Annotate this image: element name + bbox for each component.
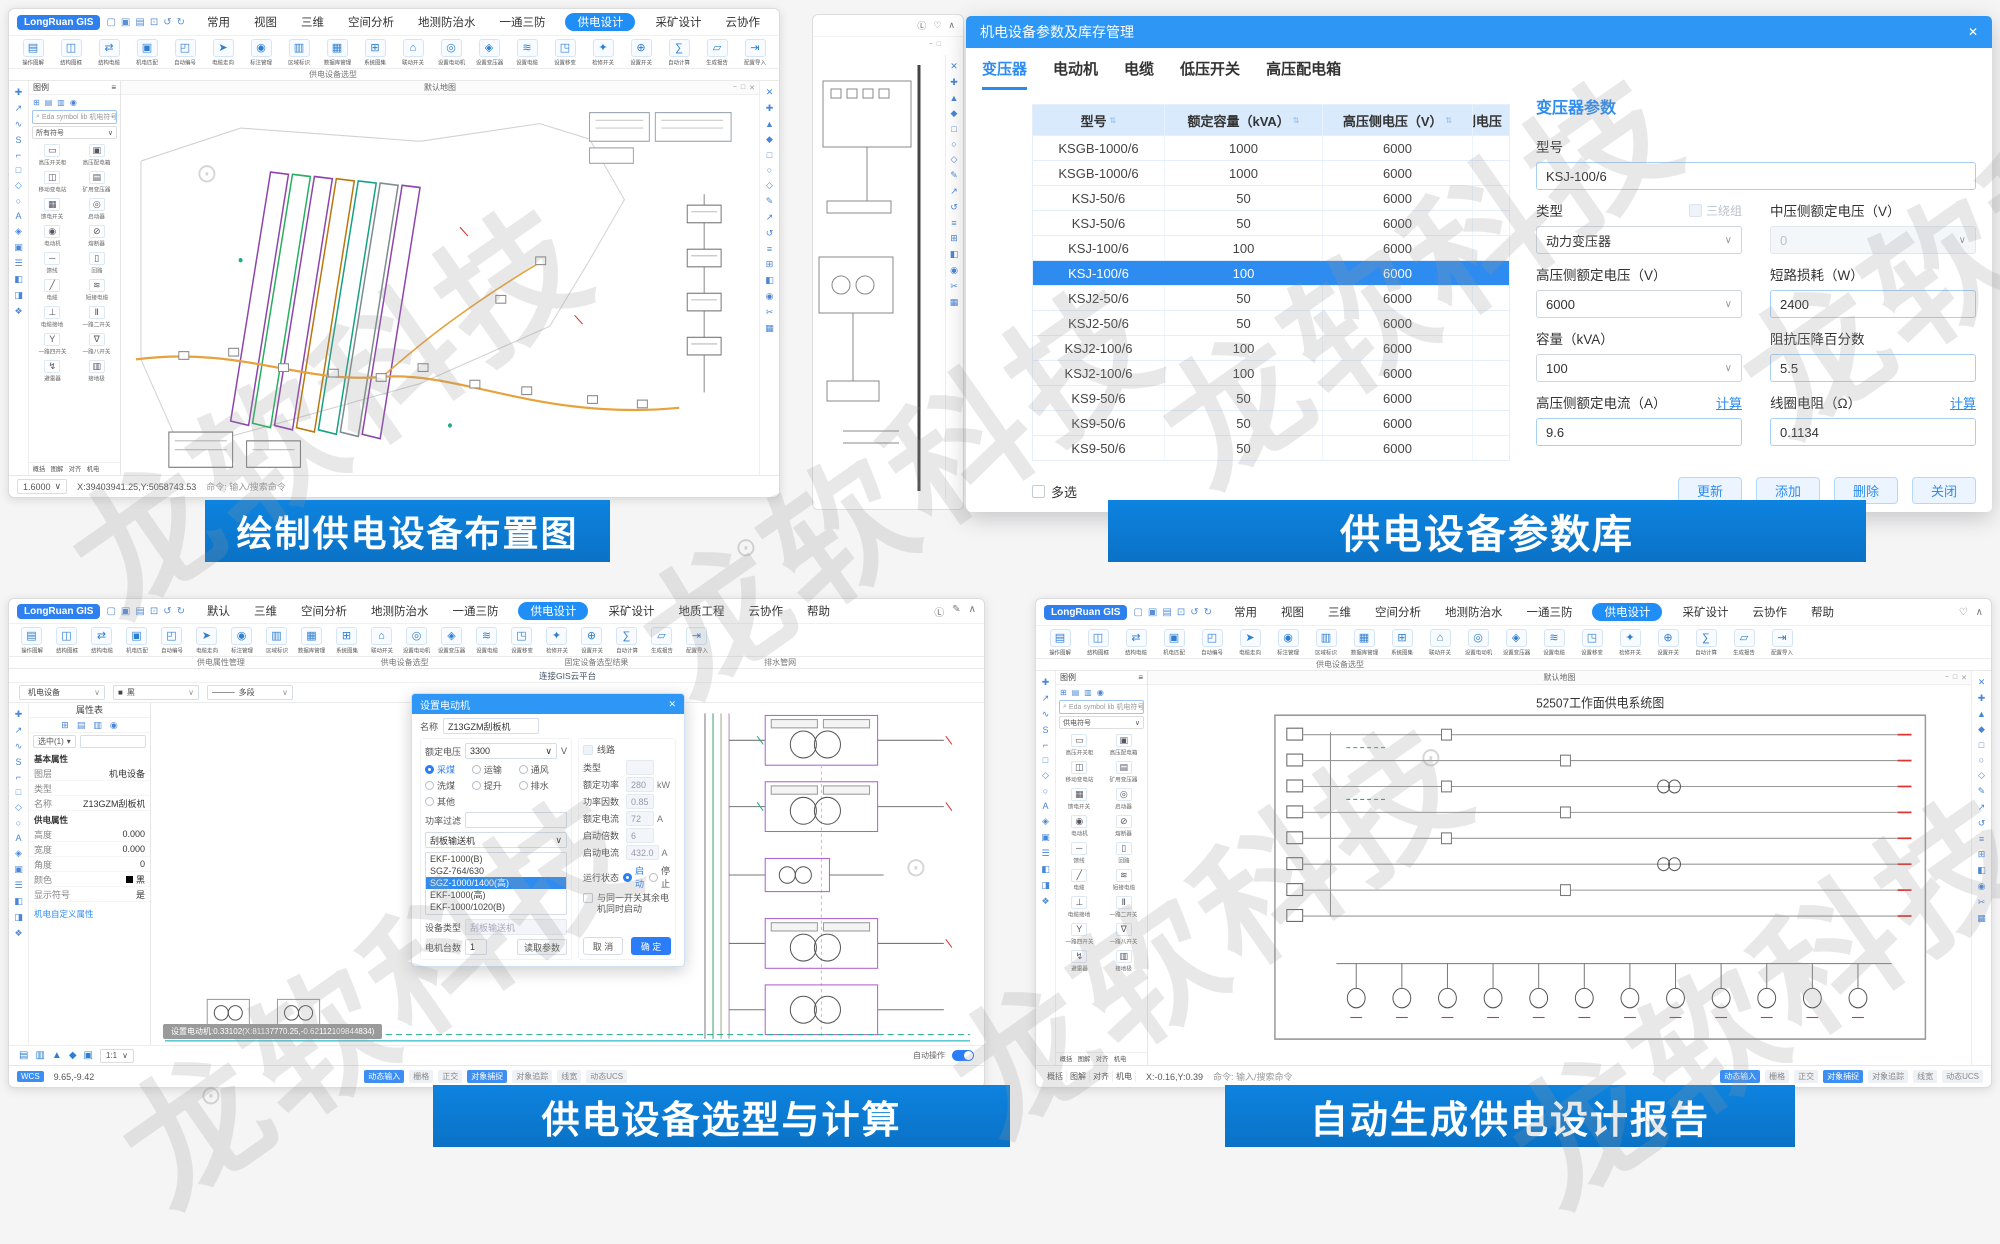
hv-select[interactable]: 6000∨ — [1536, 290, 1742, 318]
quick-icon[interactable]: ▣ — [121, 606, 130, 617]
tool-icon[interactable]: □ — [1043, 755, 1048, 765]
cancel-button[interactable]: 取 消 — [583, 937, 623, 955]
draw-mode-tab[interactable]: 动态UCS — [1942, 1070, 1983, 1083]
tool-icon[interactable]: ✚ — [15, 87, 23, 98]
tool-icon[interactable]: ⊞ — [766, 259, 774, 270]
equipment-tab[interactable]: 电缆 — [1124, 58, 1154, 90]
close-icon[interactable]: ✕ — [668, 699, 676, 710]
usage-radio[interactable]: 运输 — [472, 763, 519, 776]
symbol-item[interactable]: ◎ 启动器 — [1102, 788, 1147, 812]
tool-icon[interactable]: ◆ — [766, 134, 773, 145]
tool-icon[interactable]: ≡ — [767, 244, 772, 254]
property-row[interactable]: 高度0.000 — [29, 827, 150, 842]
properties-view-icon[interactable]: ◉ — [110, 720, 118, 731]
table-column-header[interactable]: 额定容量（kVA）⇅ — [1165, 105, 1323, 135]
draw-mode-tab[interactable]: 栅格 — [1765, 1070, 1789, 1083]
resistance-input[interactable]: 0.1134 — [1770, 418, 1976, 446]
symbol-item[interactable]: ⊥ 电缆接地 — [30, 306, 75, 330]
tool-icon[interactable]: ◆ — [951, 108, 958, 119]
motor-field-value[interactable]: 6 — [626, 828, 654, 843]
tool-icon[interactable]: ◧ — [1041, 864, 1050, 875]
menu-item[interactable]: 三维 — [250, 602, 281, 620]
ribbon-button[interactable]: ▥ 区域标识 — [281, 39, 317, 68]
tool-icon[interactable]: ↗ — [1042, 693, 1050, 704]
style-select[interactable]: ■黑 ∨ — [113, 685, 199, 700]
ribbon-button[interactable]: ▤ 操作图解 — [15, 627, 48, 656]
quick-icon[interactable]: ↻ — [1204, 607, 1212, 618]
symbol-item[interactable]: ▣ 高压配电箱 — [75, 144, 120, 168]
symbol-item[interactable]: ↯ 避雷器 — [30, 360, 75, 384]
tool-icon[interactable]: ◧ — [14, 896, 23, 907]
tool-icon[interactable]: ◨ — [14, 912, 23, 923]
ribbon-button[interactable]: ⇄ 结构电缆 — [91, 39, 127, 68]
menu-item[interactable]: 三维 — [1324, 603, 1355, 621]
ribbon-button[interactable]: ▤ 操作图解 — [15, 39, 51, 68]
tool-icon[interactable]: ◇ — [951, 154, 958, 165]
draw-mode-tab[interactable]: 线宽 — [557, 1070, 581, 1083]
tool-icon[interactable]: ∿ — [15, 741, 23, 752]
section-power[interactable]: 供电属性 — [29, 811, 150, 827]
category-select[interactable]: 刮板输送机∨ — [425, 832, 567, 848]
impedance-input[interactable]: 5.5 — [1770, 354, 1976, 382]
tool-icon[interactable]: A — [15, 833, 21, 843]
usage-radio[interactable]: 通风 — [519, 763, 566, 776]
symbol-item[interactable]: ▤ 矿用变压器 — [75, 171, 120, 195]
tool-icon[interactable]: ○ — [767, 165, 772, 175]
tool-icon[interactable]: ◆ — [1978, 724, 1985, 735]
quick-icon[interactable]: ▢ — [1133, 607, 1142, 618]
menu-item[interactable]: 地测防治水 — [1441, 603, 1507, 621]
draw-mode-tab[interactable]: 栅格 — [409, 1070, 433, 1083]
type-select[interactable]: 动力变压器∨ — [1536, 226, 1742, 254]
palette-view-icon[interactable]: ⊞ — [33, 98, 40, 107]
custom-props-link[interactable]: 机电自定义属性 — [29, 902, 150, 926]
menu-item[interactable]: 常用 — [1230, 603, 1261, 621]
equipment-tab[interactable]: 低压开关 — [1180, 58, 1240, 90]
property-row[interactable]: 图层机电设备 — [29, 766, 150, 781]
tool-icon[interactable]: □ — [16, 787, 21, 797]
menu-item[interactable]: 视图 — [250, 13, 281, 31]
tool-icon[interactable]: ☰ — [14, 258, 22, 269]
canvas-tab[interactable]: 默认地图 — [1544, 672, 1576, 683]
tool-icon[interactable]: ○ — [951, 139, 956, 149]
tool-icon[interactable]: ▲ — [765, 119, 774, 129]
edit-icon[interactable]: ✎ — [952, 604, 960, 619]
tool-icon[interactable]: A — [15, 211, 21, 221]
quick-icon[interactable]: ↺ — [163, 17, 171, 28]
symbol-search-input[interactable]: ⌕ Eda symbol lib 机电符号库 — [1059, 700, 1144, 714]
palette-view-icon[interactable]: ▤ — [45, 98, 53, 107]
ribbon-button[interactable]: ≋ 设置电缆 — [1536, 629, 1572, 658]
palette-tab[interactable]: 机电 — [1114, 1055, 1127, 1064]
ribbon-button[interactable]: ◫ 结构图框 — [53, 39, 89, 68]
menu-item[interactable]: 空间分析 — [1371, 603, 1425, 621]
ribbon-button[interactable]: ➤ 电缆走向 — [190, 627, 223, 656]
model-input[interactable]: KSJ-100/6 — [1536, 162, 1976, 190]
tool-icon[interactable]: S — [1042, 725, 1048, 735]
ribbon-button[interactable]: ◉ 标注管理 — [225, 627, 258, 656]
ribbon-button[interactable]: ◎ 设置电动机 — [1460, 629, 1496, 658]
menu-item[interactable]: 采矿设计 — [651, 13, 705, 31]
tool-icon[interactable]: ✎ — [1978, 786, 1986, 797]
symbol-item[interactable]: ▭ 高压开关柜 — [1057, 734, 1102, 758]
palette-tab[interactable]: 概括 — [33, 465, 46, 474]
tool-icon[interactable]: ✕ — [950, 61, 958, 72]
tool-icon[interactable]: ⊞ — [1978, 849, 1986, 860]
bottom-tab[interactable]: 机电 — [1113, 1071, 1136, 1082]
properties-view-icon[interactable]: ⊞ — [61, 720, 69, 731]
tool-icon[interactable]: ↺ — [1978, 818, 1986, 829]
symbol-item[interactable]: ◎ 启动器 — [75, 198, 120, 222]
menu-item[interactable]: 三维 — [297, 13, 328, 31]
tool-icon[interactable]: ⌐ — [1043, 740, 1048, 750]
symbol-item[interactable]: ◫ 移动变电站 — [30, 171, 75, 195]
three-winding-checkbox[interactable]: 三绕组 — [1689, 202, 1742, 219]
tool-icon[interactable]: ↗ — [1978, 802, 1986, 813]
palette-menu-icon[interactable]: ≡ — [111, 83, 116, 92]
checkbox-icon[interactable] — [583, 745, 593, 755]
menu-item[interactable]: 采矿设计 — [604, 602, 658, 620]
current-input[interactable]: 9.6 — [1536, 418, 1742, 446]
ribbon-button[interactable]: ◰ 自动编号 — [155, 627, 188, 656]
selection-filter[interactable]: 选中(1)▾ — [33, 735, 76, 748]
sort-icon[interactable]: ⇅ — [1293, 116, 1300, 125]
ribbon-button[interactable]: ⊕ 设置开关 — [575, 627, 608, 656]
symbol-item[interactable]: ◉ 电动机 — [1057, 815, 1102, 839]
tool-icon[interactable]: ▲ — [950, 93, 959, 103]
multi-select-checkbox[interactable]: 多选 — [1032, 482, 1077, 501]
tool-icon[interactable]: ○ — [1979, 755, 1984, 765]
menu-item[interactable]: 地测防治水 — [414, 13, 480, 31]
menu-item[interactable]: 云协作 — [1748, 603, 1791, 621]
equipment-tab[interactable]: 变压器 — [982, 58, 1027, 90]
symbol-item[interactable]: ─ 馈线 — [30, 252, 75, 276]
state-stop-radio[interactable]: 停止 — [649, 864, 671, 890]
sort-icon[interactable]: ⇅ — [1445, 116, 1452, 125]
draw-mode-tab[interactable]: 对象捕捉 — [467, 1070, 507, 1083]
tool-icon[interactable]: ≡ — [951, 218, 956, 228]
tool-icon[interactable]: □ — [16, 165, 21, 175]
model-list-item[interactable]: EKF-1000(B) — [426, 853, 566, 865]
table-row[interactable]: KS9-50/6506000 — [1033, 385, 1509, 410]
palette-tab[interactable]: 概括 — [1060, 1055, 1073, 1064]
tool-icon[interactable]: ◈ — [1042, 816, 1049, 827]
table-column-header[interactable]: 型号⇅ — [1033, 105, 1165, 135]
tool-icon[interactable]: ◈ — [15, 848, 22, 859]
tool-icon[interactable]: ◨ — [14, 290, 23, 301]
tool-icon[interactable]: ◇ — [766, 180, 773, 191]
table-row[interactable]: KS9-50/6506000 — [1033, 410, 1509, 435]
menu-item[interactable]: 一通三防 — [1522, 603, 1576, 621]
symbol-item[interactable]: ▯ 回路 — [1102, 842, 1147, 866]
user-icon[interactable]: Ⓛ — [934, 604, 944, 619]
menu-item[interactable]: 常用 — [203, 13, 234, 31]
ribbon-button[interactable]: ▣ 机电匹配 — [1156, 629, 1192, 658]
tool-icon[interactable]: ✂ — [1978, 897, 1986, 908]
loss-input[interactable]: 2400 — [1770, 290, 1976, 318]
minimize-icon[interactable]: − — [929, 41, 933, 48]
ribbon-button[interactable]: ⇥ 配置导入 — [1764, 629, 1800, 658]
tool-icon[interactable]: ⊞ — [950, 233, 958, 244]
ribbon-button[interactable]: ∑ 自动计算 — [610, 627, 643, 656]
ribbon-button[interactable]: ▦ 数据库管理 — [1346, 629, 1382, 658]
command-hint[interactable]: 命令: 输入/搜索命令 — [206, 480, 286, 493]
ribbon-button[interactable]: ⇥ 配置导入 — [737, 39, 773, 68]
symbol-item[interactable]: ◫ 移动变电站 — [1057, 761, 1102, 785]
table-row[interactable]: KSJ-50/6506000 — [1033, 185, 1509, 210]
table-row[interactable]: KSJ2-50/6506000 — [1033, 310, 1509, 335]
quick-icon[interactable]: ▤ — [1162, 607, 1171, 618]
tool-icon[interactable]: ❖ — [14, 928, 22, 939]
ribbon-button[interactable]: ≋ 设置电缆 — [470, 627, 503, 656]
quick-icon[interactable]: ⊡ — [150, 17, 158, 28]
palette-tab[interactable]: 对齐 — [1096, 1055, 1109, 1064]
tool-icon[interactable]: ◧ — [950, 249, 959, 260]
draw-mode-tab[interactable]: 对象追踪 — [512, 1070, 552, 1083]
model-list-item[interactable]: SGZ-764/630 — [426, 865, 566, 877]
menu-item[interactable]: 地测防治水 — [367, 602, 433, 620]
ribbon-button[interactable]: ✦ 检修开关 — [585, 39, 621, 68]
collapse-icon[interactable]: ∧ — [948, 20, 955, 31]
ribbon-button[interactable]: ⊞ 系统图集 — [330, 627, 363, 656]
tool-icon[interactable]: ▦ — [765, 323, 774, 334]
symbol-item[interactable]: Ⅱ 一路二开关 — [1102, 896, 1147, 920]
quick-icon[interactable]: ▣ — [1148, 607, 1157, 618]
quick-icon[interactable]: ▣ — [121, 17, 130, 28]
tool-icon[interactable]: ✚ — [950, 77, 958, 88]
minimize-icon[interactable]: − — [733, 84, 737, 92]
tool-icon[interactable]: S — [15, 135, 21, 145]
quick-icon[interactable]: ⊡ — [150, 606, 158, 617]
ribbon-button[interactable]: ◫ 结构图框 — [50, 627, 83, 656]
ribbon-button[interactable]: ▣ 机电匹配 — [129, 39, 165, 68]
tool-icon[interactable]: S — [15, 757, 21, 767]
table-row[interactable]: KSJ2-50/6506000 — [1033, 285, 1509, 310]
tool-icon[interactable]: ◧ — [14, 274, 23, 285]
user-icon[interactable]: Ⓛ — [917, 19, 926, 32]
table-column-header[interactable]: 高压侧电压（V）⇅ — [1323, 105, 1473, 135]
draw-mode-tab[interactable]: 动态输入 — [1720, 1070, 1760, 1083]
menu-item[interactable]: 云协作 — [721, 13, 764, 31]
quick-icon[interactable]: ↺ — [163, 606, 171, 617]
ribbon-button[interactable]: ◰ 自动编号 — [1194, 629, 1230, 658]
tool-icon[interactable]: ✎ — [950, 170, 958, 181]
tool-icon[interactable]: ✚ — [15, 709, 23, 720]
palette-view-icon[interactable]: ◉ — [1097, 688, 1104, 697]
bottom-tab[interactable]: 概括 — [1044, 1071, 1067, 1082]
style-select[interactable]: ────多段 ∨ — [207, 685, 293, 700]
table-column-header[interactable]: 低压侧电压（V）⇅ — [1473, 105, 1510, 135]
view-icon[interactable]: ▤ — [19, 1050, 28, 1061]
usage-radio[interactable]: 其他 — [425, 795, 472, 808]
menu-item[interactable]: 一通三防 — [495, 13, 549, 31]
symbol-item[interactable]: ▥ 接地极 — [75, 360, 120, 384]
tool-icon[interactable]: ▣ — [14, 864, 23, 875]
tool-icon[interactable]: ◉ — [950, 265, 958, 276]
table-row[interactable]: KSJ-50/6506000 — [1033, 210, 1509, 235]
tool-icon[interactable]: ✕ — [766, 87, 774, 98]
ribbon-button[interactable]: ◳ 设置移变 — [547, 39, 583, 68]
tool-icon[interactable]: ✚ — [1042, 677, 1050, 688]
ribbon-button[interactable]: ⌂ 联动开关 — [395, 39, 431, 68]
model-list-item[interactable]: EKF-1000HD(B) — [426, 913, 566, 915]
menu-item[interactable]: 默认 — [203, 602, 234, 620]
motor-field-value[interactable]: 0.85 — [626, 794, 654, 809]
command-hint[interactable]: 命令: 输入/搜索命令 — [1213, 1070, 1293, 1083]
ribbon-button[interactable]: ✦ 检修开关 — [540, 627, 573, 656]
draw-mode-tab[interactable]: 对象捕捉 — [1823, 1070, 1863, 1083]
ribbon-button[interactable]: ➤ 电缆走向 — [1232, 629, 1268, 658]
tool-icon[interactable]: ◧ — [1977, 865, 1986, 876]
ribbon-button[interactable]: ◈ 设置变压器 — [435, 627, 468, 656]
restore-icon[interactable]: □ — [937, 41, 941, 48]
symbol-item[interactable]: ▭ 高压开关柜 — [30, 144, 75, 168]
tool-icon[interactable]: ∿ — [1042, 709, 1050, 720]
tool-icon[interactable]: ≡ — [1979, 834, 1984, 844]
tool-icon[interactable]: ∿ — [15, 119, 23, 130]
tool-icon[interactable]: ↺ — [766, 228, 774, 239]
palette-view-icon[interactable]: ▤ — [1072, 688, 1080, 697]
motor-field-value[interactable]: 72 — [626, 811, 654, 826]
table-row[interactable]: KSJ2-100/61006000 — [1033, 335, 1509, 360]
dialog-button[interactable]: 关闭 — [1912, 477, 1976, 504]
auto-operate-toggle[interactable] — [952, 1050, 974, 1061]
menu-item[interactable]: 供电设计 — [518, 602, 588, 620]
ribbon-button[interactable]: ⇄ 结构电缆 — [85, 627, 118, 656]
ribbon-button[interactable]: ⊕ 设置开关 — [1650, 629, 1686, 658]
tool-icon[interactable]: ↗ — [15, 725, 23, 736]
menu-item[interactable]: 地质工程 — [674, 602, 728, 620]
symbol-item[interactable]: ≋ 短接电缆 — [75, 279, 120, 303]
tool-icon[interactable]: ☰ — [14, 880, 22, 891]
tool-icon[interactable]: ↗ — [766, 212, 774, 223]
symbol-item[interactable]: ─ 馈线 — [1057, 842, 1102, 866]
menu-item[interactable]: 帮助 — [1807, 603, 1838, 621]
close-icon[interactable]: ✕ — [749, 84, 755, 92]
table-row[interactable]: KSGB-1000/610006000 — [1033, 160, 1509, 185]
state-start-radio[interactable]: 启动 — [623, 864, 645, 890]
palette-view-icon[interactable]: ▥ — [1084, 688, 1092, 697]
symbol-item[interactable]: ≋ 短接电缆 — [1102, 869, 1147, 893]
property-row[interactable]: 类型 — [29, 781, 150, 796]
wcs-chip[interactable]: WCS — [17, 1071, 44, 1082]
usage-radio[interactable]: 洗煤 — [425, 779, 472, 792]
tool-icon[interactable]: ☰ — [1041, 848, 1049, 859]
table-row[interactable]: KSJ-100/61006000 — [1033, 260, 1509, 285]
symbol-item[interactable]: ▯ 回路 — [75, 252, 120, 276]
tool-icon[interactable]: ⌐ — [16, 772, 21, 782]
ribbon-button[interactable]: ◉ 标注管理 — [1270, 629, 1306, 658]
symbol-search-input[interactable]: ⌕ Eda symbol lib 机电符号库 — [32, 110, 117, 124]
symbol-item[interactable]: ∇ 一路八开关 — [75, 333, 120, 357]
palette-tab[interactable]: 图解 — [1078, 1055, 1091, 1064]
draw-mode-tab[interactable]: 动态UCS — [586, 1070, 627, 1083]
scale-select[interactable]: 1.6000∨ — [17, 479, 67, 494]
ribbon-button[interactable]: ◉ 标注管理 — [243, 39, 279, 68]
symbol-filter-select[interactable]: 所有符号∨ — [32, 126, 117, 139]
tool-icon[interactable]: ◉ — [766, 291, 774, 302]
equipment-tab[interactable]: 电动机 — [1053, 58, 1098, 90]
menu-item[interactable]: 一通三防 — [448, 602, 502, 620]
tool-icon[interactable]: ✚ — [1978, 693, 1986, 704]
tool-icon[interactable]: ▣ — [14, 242, 23, 253]
properties-view-icon[interactable]: ▥ — [93, 720, 102, 731]
equipment-tab[interactable]: 高压配电箱 — [1266, 58, 1341, 90]
tool-icon[interactable]: □ — [767, 150, 772, 160]
symbol-item[interactable]: Y 一路四开关 — [30, 333, 75, 357]
symbol-item[interactable]: ⊘ 熔断器 — [75, 225, 120, 249]
quick-icon[interactable]: ↻ — [177, 606, 185, 617]
mv-select[interactable]: 0∨ — [1770, 226, 1976, 254]
canvas-tab[interactable]: 默认地图 — [424, 82, 456, 93]
menu-item[interactable]: 视图 — [1277, 603, 1308, 621]
draw-mode-tab[interactable]: 正交 — [438, 1070, 462, 1083]
ribbon-button[interactable]: ⊞ 系统图集 — [1384, 629, 1420, 658]
ribbon-button[interactable]: ▥ 区域标识 — [260, 627, 293, 656]
tool-icon[interactable]: ↗ — [15, 103, 23, 114]
palette-tab[interactable]: 对齐 — [69, 465, 82, 474]
tool-icon[interactable]: ◧ — [765, 275, 774, 286]
power-filter-input[interactable] — [465, 812, 567, 828]
model-list-item[interactable]: EKF-1000/1020(B) — [426, 901, 566, 913]
tool-icon[interactable]: ◈ — [15, 226, 22, 237]
ribbon-button[interactable]: ◈ 设置变压器 — [471, 39, 507, 68]
ribbon-button[interactable]: ◳ 设置移变 — [1574, 629, 1610, 658]
property-row[interactable]: 宽度0.000 — [29, 842, 150, 857]
tool-icon[interactable]: A — [1042, 801, 1048, 811]
style-select[interactable]: 机电设备 ∨ — [19, 685, 105, 700]
ribbon-button[interactable]: ◳ 设置移变 — [505, 627, 538, 656]
ribbon-button[interactable]: ▱ 生成报告 — [645, 627, 678, 656]
tool-icon[interactable]: ◇ — [1978, 770, 1985, 781]
tool-icon[interactable]: ❖ — [1041, 896, 1049, 907]
view-icon[interactable]: ▣ — [84, 1050, 93, 1061]
ribbon-button[interactable]: ⌂ 联动开关 — [365, 627, 398, 656]
menu-item[interactable]: 供电设计 — [565, 13, 635, 31]
draw-mode-tab[interactable]: 动态输入 — [364, 1070, 404, 1083]
ribbon-button[interactable]: ✦ 检修开关 — [1612, 629, 1648, 658]
quick-icon[interactable]: ▤ — [135, 17, 144, 28]
table-row[interactable]: KSGB-1000/610006000 — [1033, 135, 1509, 160]
property-row[interactable]: 颜色黑 — [29, 872, 150, 887]
symbol-item[interactable]: ↯ 避雷器 — [1057, 950, 1102, 974]
property-row[interactable]: 名称Z13GZM刮板机 — [29, 796, 150, 811]
ribbon-button[interactable]: ◈ 设置变压器 — [1498, 629, 1534, 658]
draw-mode-tab[interactable]: 正交 — [1794, 1070, 1818, 1083]
ribbon-button[interactable]: ∑ 自动计算 — [661, 39, 697, 68]
ribbon-button[interactable]: ▱ 生成报告 — [699, 39, 735, 68]
close-icon[interactable]: ✕ — [1961, 674, 1967, 682]
tool-icon[interactable]: ◇ — [15, 802, 22, 813]
ribbon-button[interactable]: ⊞ 系统图集 — [357, 39, 393, 68]
tool-icon[interactable]: ◨ — [1041, 880, 1050, 891]
ribbon-button[interactable]: ➤ 电缆走向 — [205, 39, 241, 68]
voltage-select[interactable]: 3300∨ — [465, 743, 557, 759]
tool-icon[interactable]: ▦ — [950, 297, 959, 308]
palette-view-icon[interactable]: ▥ — [57, 98, 65, 107]
ribbon-button[interactable]: ▤ 操作图解 — [1042, 629, 1078, 658]
quick-icon[interactable]: ▤ — [135, 606, 144, 617]
read-params-button[interactable]: 读取参数 — [517, 939, 567, 955]
property-row[interactable]: 角度0 — [29, 857, 150, 872]
menu-item[interactable]: 云协作 — [744, 602, 787, 620]
theme-icon[interactable]: ♡ — [933, 20, 941, 31]
capacity-select[interactable]: 100∨ — [1536, 354, 1742, 382]
tool-icon[interactable]: □ — [1979, 740, 1984, 750]
tool-icon[interactable]: ✚ — [766, 103, 774, 114]
symbol-item[interactable]: ▥ 接地极 — [1102, 950, 1147, 974]
tool-icon[interactable]: ○ — [16, 818, 21, 828]
